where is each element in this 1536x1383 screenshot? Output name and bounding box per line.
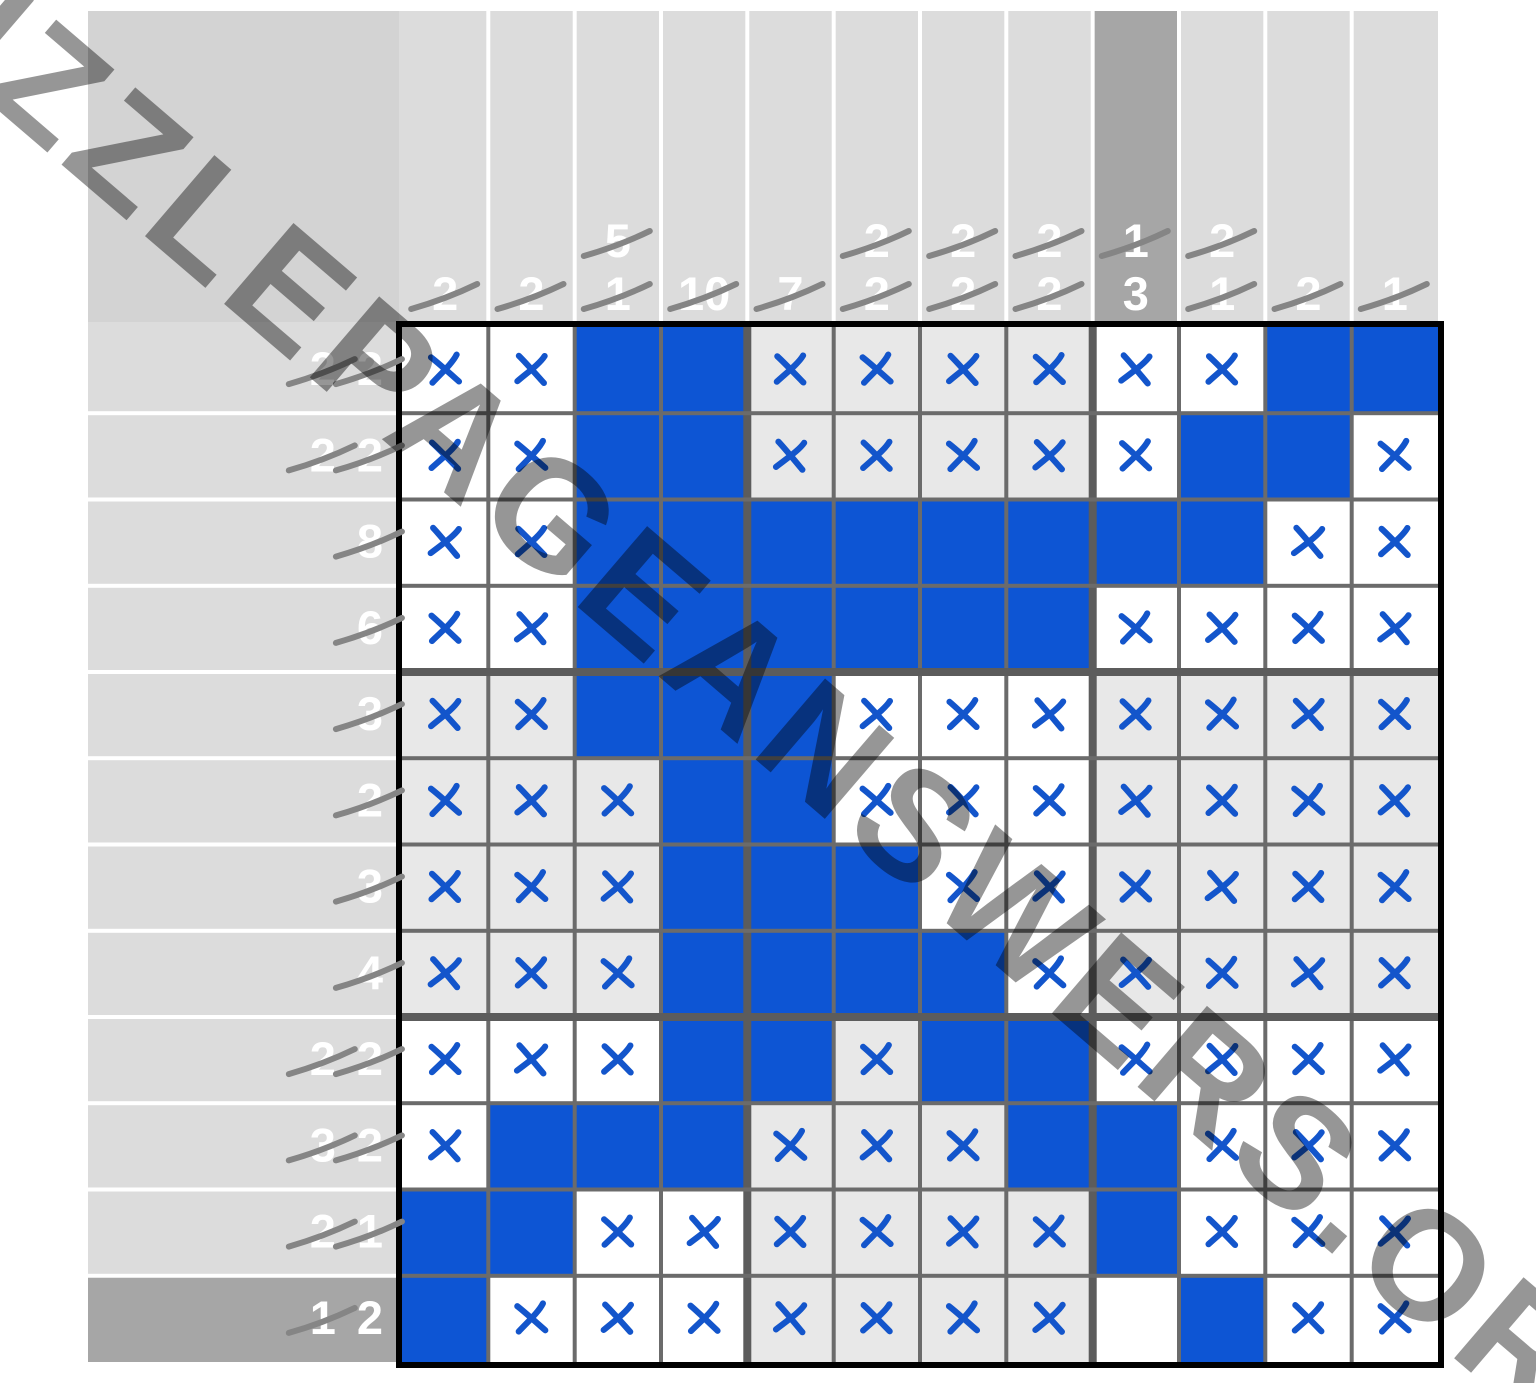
svg-text:2: 2 <box>357 1291 383 1344</box>
svg-text:3: 3 <box>1123 267 1149 320</box>
